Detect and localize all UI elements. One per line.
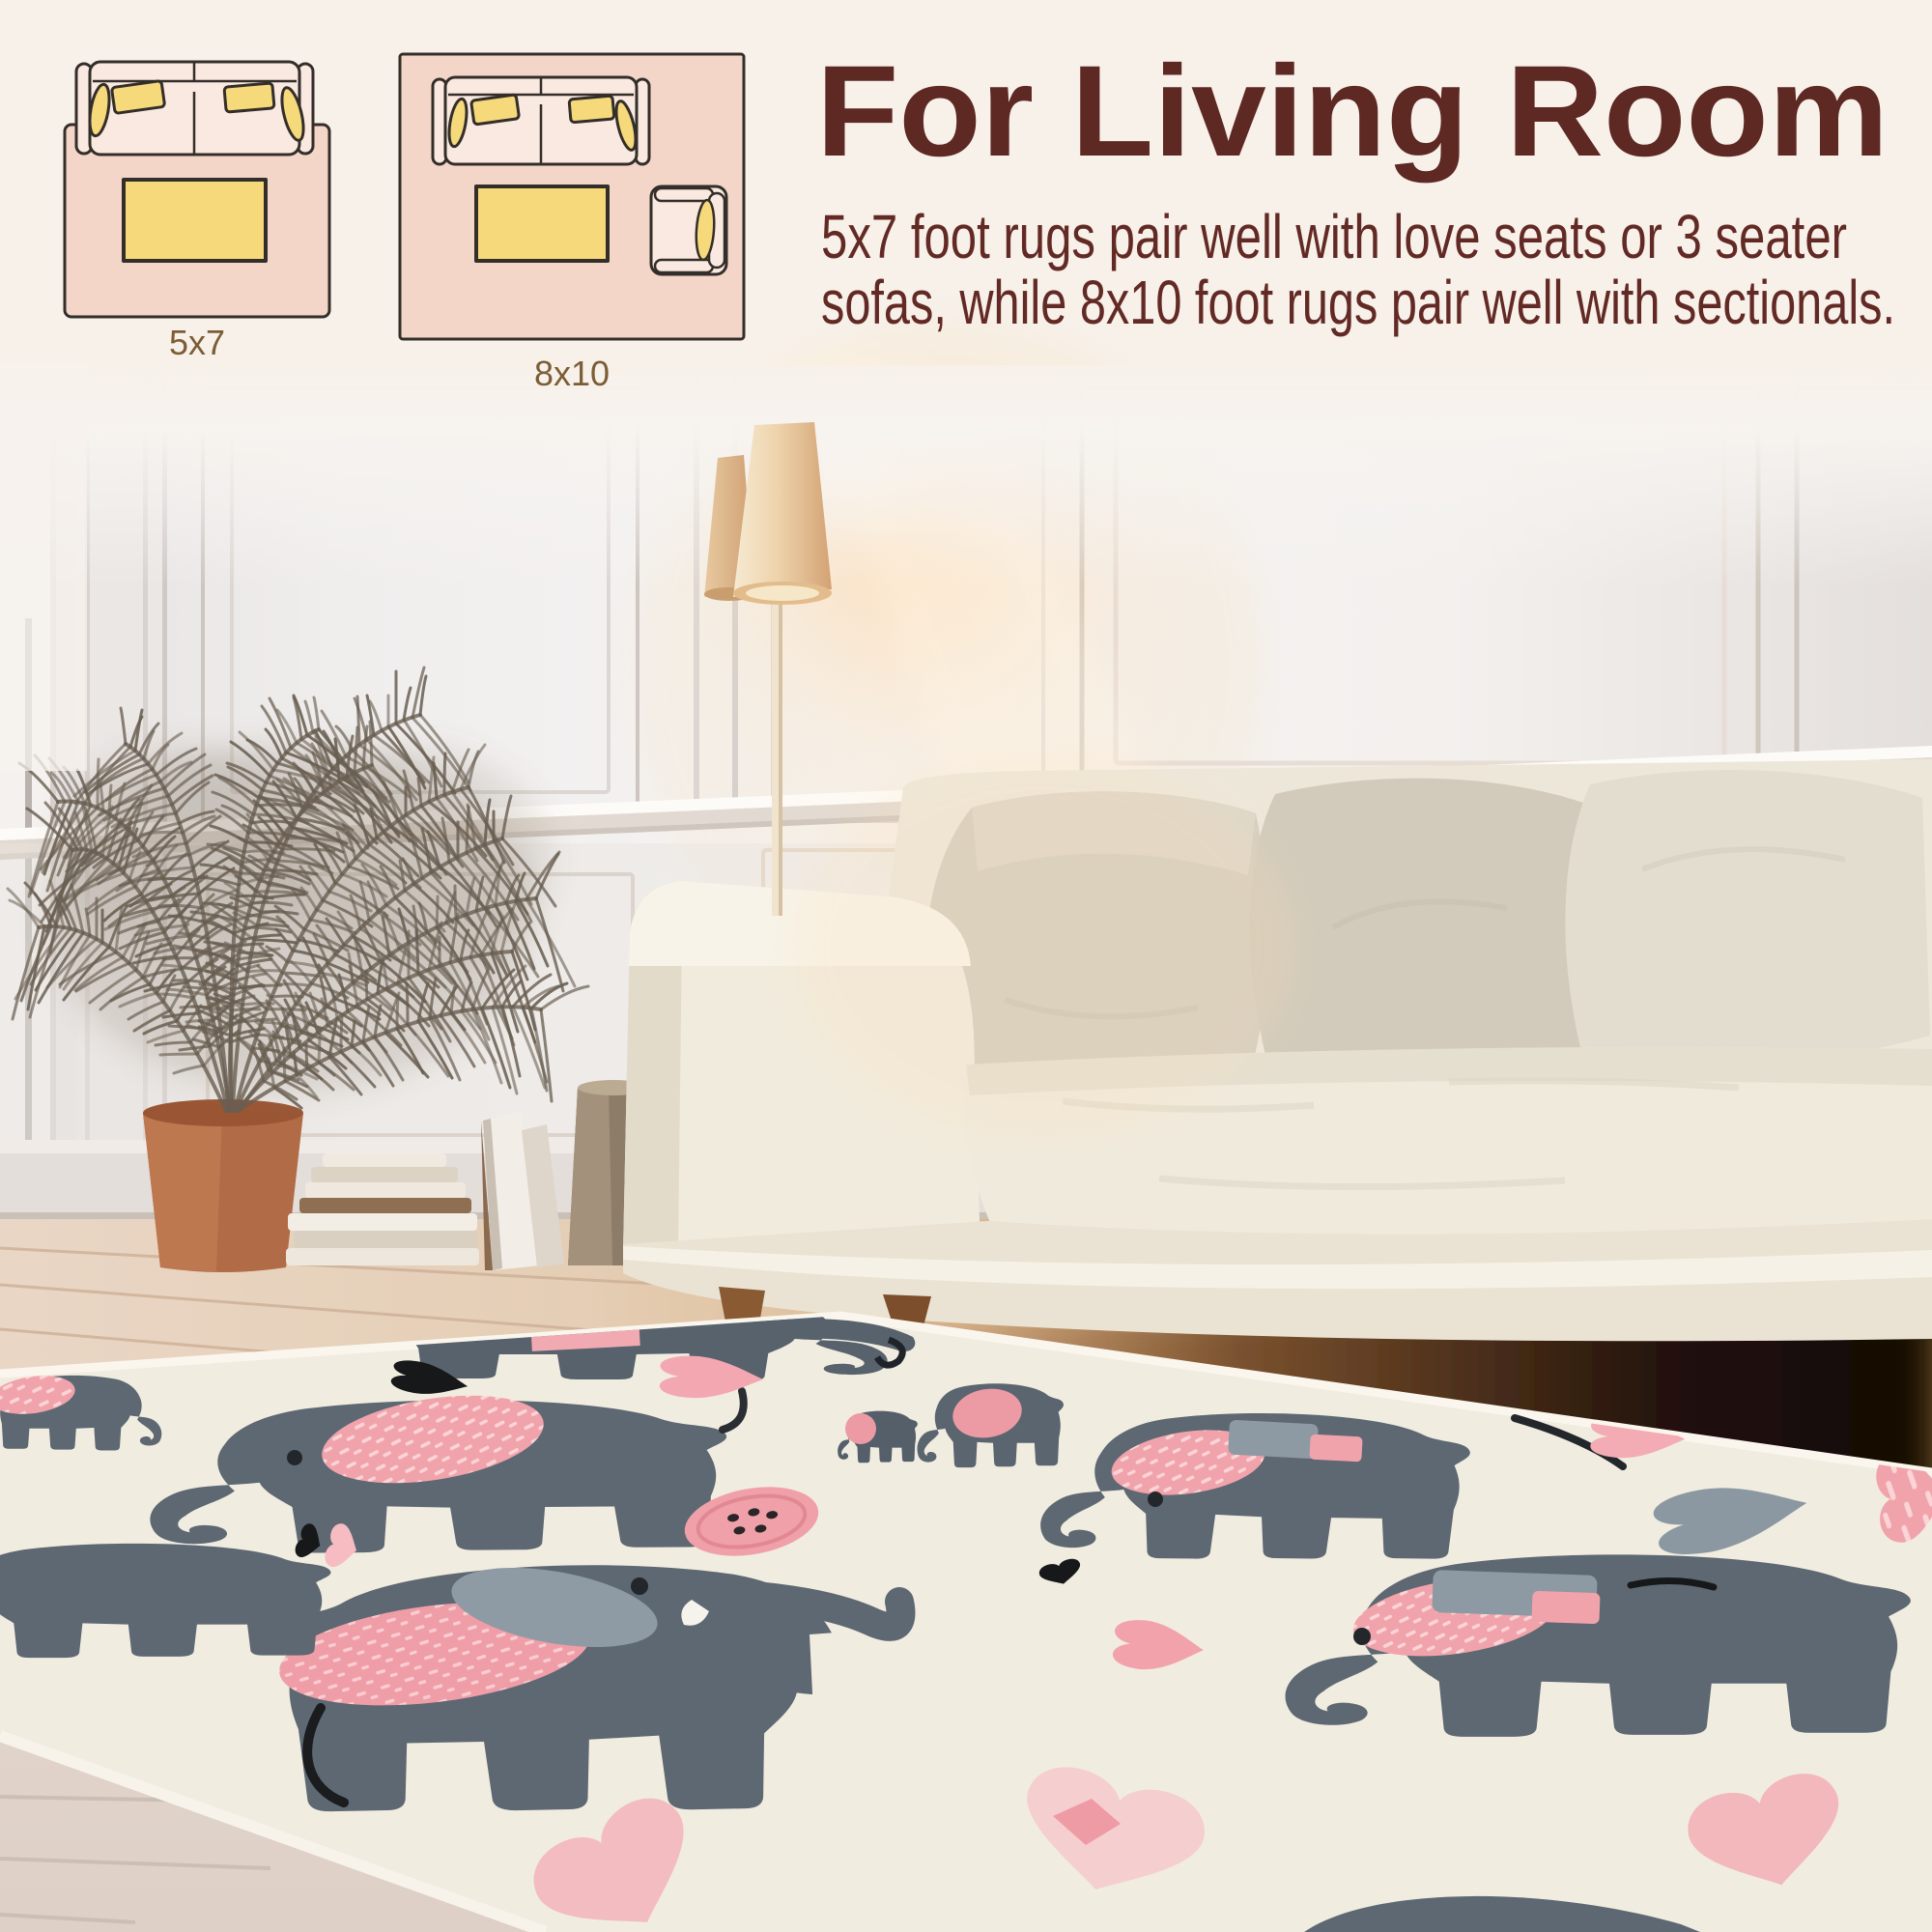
svg-text:5x7 foot rugs pair well with l: 5x7 foot rugs pair well with love seats … [821, 202, 1847, 271]
svg-text:5x7: 5x7 [169, 323, 225, 362]
svg-text:For Living Room: For Living Room [816, 40, 1889, 184]
svg-text:8x10: 8x10 [534, 354, 610, 393]
svg-text:sofas, while 8x10 foot rugs pa: sofas, while 8x10 foot rugs pair well wi… [821, 268, 1895, 337]
